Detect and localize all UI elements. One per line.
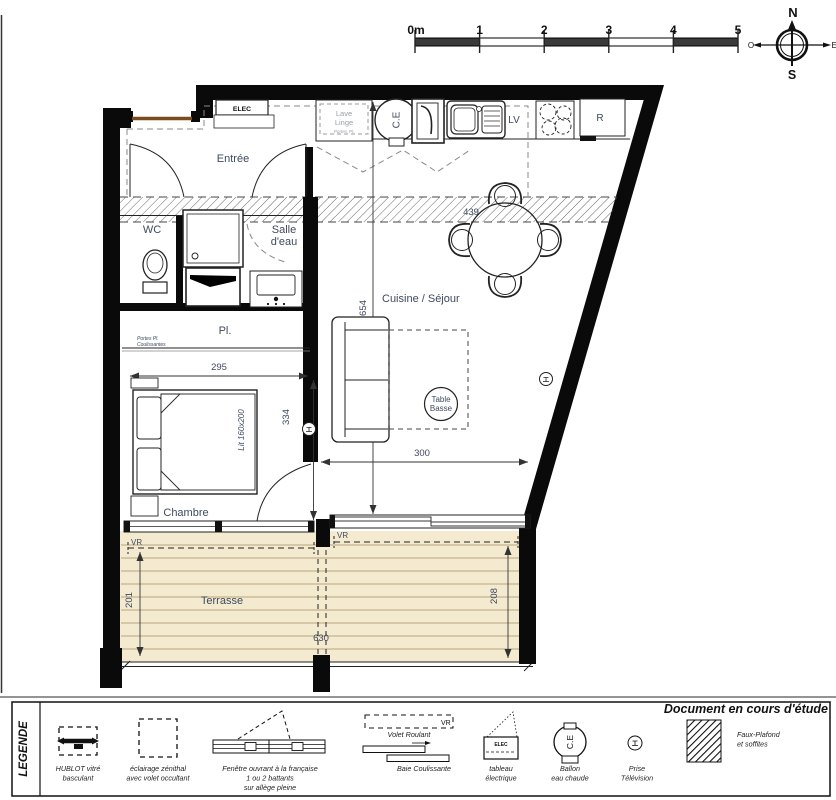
scale-tick-2: 2: [541, 23, 548, 37]
nightstand-bottom: [131, 496, 158, 516]
legend-faux-plafond-symbol: [687, 720, 721, 762]
sofa: [332, 317, 389, 442]
legend-note: Document en cours d'étude: [664, 702, 828, 716]
coffee-table-label-1: Table: [431, 395, 451, 404]
legend-fenetre-label-3: sur allège pleine: [244, 783, 296, 792]
vanity: [186, 268, 240, 306]
washbasin: [250, 271, 302, 307]
shower: [183, 210, 243, 267]
dim-295: 295: [211, 362, 227, 373]
fridge-label: R: [596, 113, 603, 124]
lave-linge-label-2: Linge: [335, 118, 353, 127]
compass-south: S: [788, 68, 796, 82]
legend-eclairage-label-1: éclairage zénithal: [130, 764, 186, 773]
closet-note-2: Coulissantes: [137, 342, 166, 348]
salle-eau-label-1: Salle: [272, 224, 296, 236]
legend-ballon-sym-label: C.E: [565, 735, 575, 750]
terrace: VR VR Terrasse 201 208 630: [104, 531, 536, 671]
scale-tick-0: 0m: [407, 23, 424, 37]
compass-west: O: [748, 41, 754, 50]
salle-eau-room: Salle d'eau: [183, 210, 302, 307]
scale-tick-1: 1: [476, 23, 483, 37]
cooktop: [536, 101, 574, 139]
entrance-door: [124, 111, 200, 122]
chambre-room: 295 334 Lit 160x200 Chambre: [130, 362, 316, 521]
floor-plan-svg: 0m 1 2 3 4 5 N S O E: [0, 0, 836, 800]
vr-left-label: VR: [131, 538, 142, 547]
sejour-room: Cuisine / Séjour 654 300 Table Basse: [321, 102, 561, 514]
legend-baie-vr: VR: [441, 720, 451, 727]
legend: LEGENDE HUBLOT vitré basculant éclairage…: [0, 697, 836, 796]
elec-label: ELEC: [233, 106, 251, 113]
terrasse-label: Terrasse: [201, 595, 243, 607]
nightstand-top: [131, 378, 158, 388]
placard-label: Pl.: [219, 325, 232, 337]
tv-outlet-sejour: [540, 373, 553, 386]
legend-eclairage-label-2: avec volet occultant: [126, 774, 190, 783]
coffee-table: Table Basse: [425, 388, 458, 421]
lave-linge-label-1: Lave: [336, 109, 352, 118]
wc-room: WC: [143, 224, 167, 293]
legend-ballon-label-2: eau chaude: [551, 774, 589, 783]
legend-prise-symbol: [628, 736, 642, 750]
sejour-bay-window: [330, 515, 530, 528]
coffee-table-label-2: Basse: [430, 404, 453, 413]
compass-north: N: [788, 5, 797, 20]
legend-baie-label: Baie Coulissante: [397, 764, 451, 773]
legend-hublot-label-2: basculant: [63, 774, 95, 783]
bed-label: Lit 160x200: [237, 409, 246, 451]
toilet: [143, 250, 167, 293]
legend-baie-caption: Volet Roulant: [388, 730, 432, 739]
bed: Lit 160x200: [133, 390, 257, 494]
washing-machine: Lave Linge Portes Pl.: [316, 100, 372, 141]
legend-title: LEGENDE: [18, 721, 30, 777]
dim-334: 334: [281, 409, 292, 425]
tv-outlet-chambre: [303, 423, 316, 436]
scale-bar: 0m 1 2 3 4 5: [407, 23, 741, 53]
lave-linge-note: Portes Pl.: [334, 129, 355, 135]
vr-right-label: VR: [337, 531, 348, 540]
dim-654: 654: [358, 300, 369, 316]
dim-201: 201: [124, 592, 135, 608]
legend-hublot-label-1: HUBLOT vitré: [56, 764, 101, 773]
salle-eau-label-2: d'eau: [271, 236, 298, 248]
dim-208: 208: [489, 588, 500, 604]
wc-label: WC: [143, 224, 161, 236]
legend-faux-label-2: et soffites: [737, 740, 768, 749]
ce-label: C.E: [392, 111, 403, 128]
legend-tableau-label-2: électrique: [485, 774, 516, 783]
placard: Pl. Portes Pl. Coulissantes: [122, 325, 310, 351]
legend-fenetre-label-2: 1 ou 2 battants: [246, 774, 294, 783]
legend-fenetre-label-1: Fenêtre ouvrant à la française: [222, 764, 318, 773]
lv-label: LV: [508, 115, 520, 126]
dim-630: 630: [313, 633, 329, 644]
kitchen-column: [412, 99, 444, 143]
compass-east: E: [832, 41, 836, 50]
entree-label: Entrée: [217, 153, 249, 165]
chambre-label: Chambre: [163, 507, 208, 519]
legend-tableau-sym-label: ELEC: [494, 742, 508, 748]
cuisine-sejour-label: Cuisine / Séjour: [382, 293, 460, 305]
fridge: R: [580, 99, 625, 141]
legend-prise-label-2: Télévision: [621, 774, 653, 783]
floor-plan-page: 0m 1 2 3 4 5 N S O E: [0, 0, 836, 800]
legend-tableau-label-1: tableau: [489, 764, 513, 773]
scale-tick-5: 5: [735, 23, 742, 37]
kitchen-sink: LV: [447, 101, 520, 138]
elec-panel: ELEC: [214, 100, 274, 128]
scale-tick-3: 3: [605, 23, 612, 37]
compass-rose: N S O E: [748, 5, 836, 82]
legend-prise-label-1: Prise: [629, 764, 645, 773]
legend-ballon-label-1: Ballon: [560, 764, 580, 773]
legend-faux-label-1: Faux-Plafond: [737, 730, 781, 739]
scale-tick-4: 4: [670, 23, 677, 37]
chambre-windows: [124, 521, 314, 532]
dim-300: 300: [414, 448, 430, 459]
